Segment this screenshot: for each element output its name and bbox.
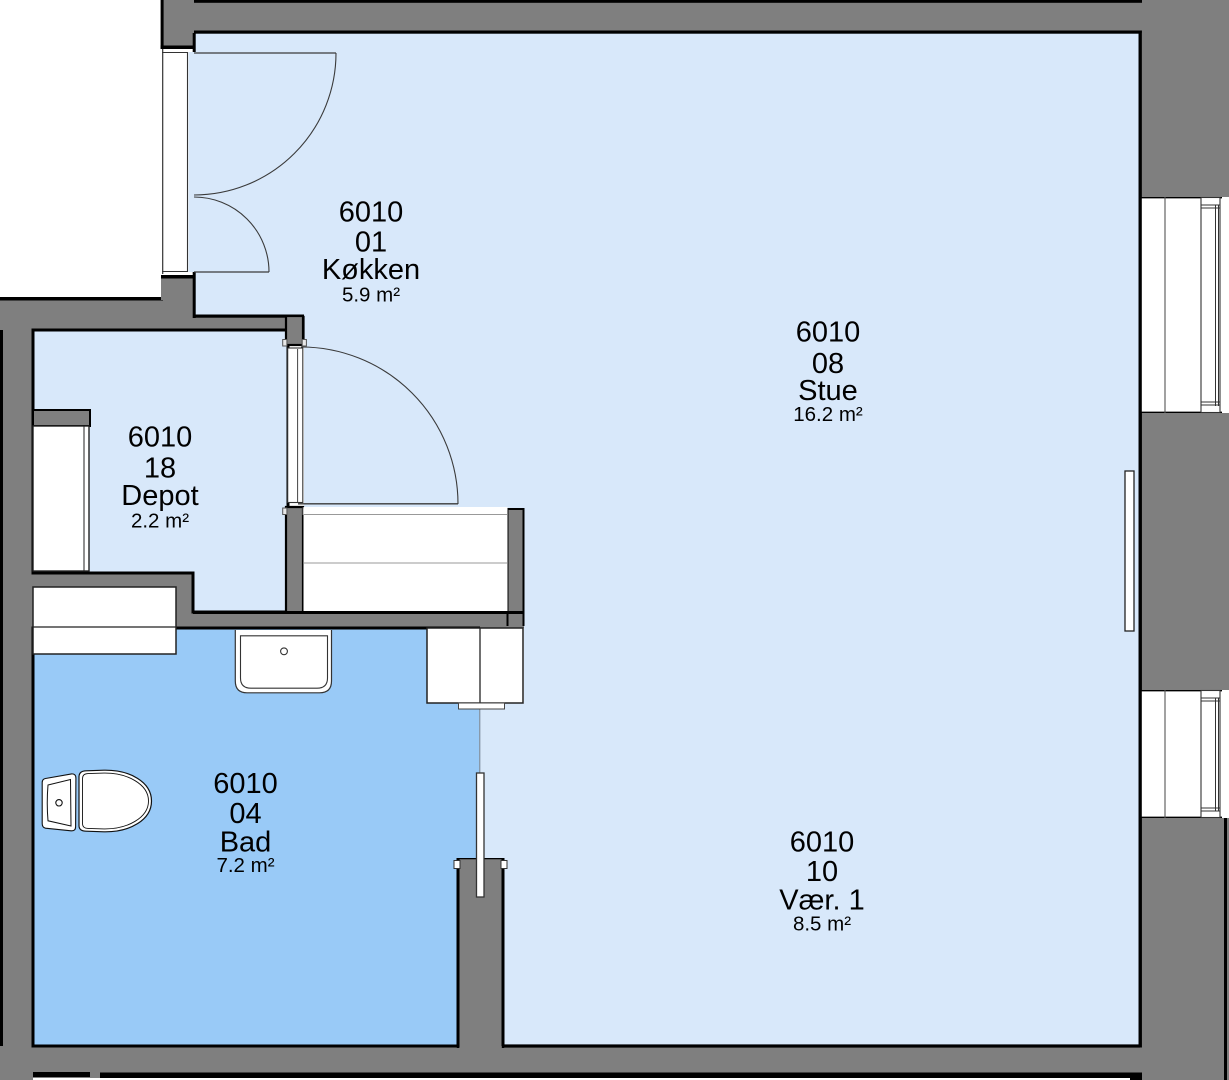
svg-text:Depot: Depot: [121, 480, 198, 512]
svg-text:8.5 m²: 8.5 m²: [793, 913, 851, 936]
svg-text:5.9 m²: 5.9 m²: [342, 284, 400, 307]
svg-text:6010: 6010: [790, 827, 855, 859]
svg-text:6010: 6010: [213, 768, 278, 800]
svg-text:7.2 m²: 7.2 m²: [216, 854, 274, 877]
svg-text:04: 04: [229, 798, 261, 830]
svg-text:10: 10: [806, 856, 838, 888]
svg-text:6010: 6010: [796, 317, 861, 349]
svg-text:Køkken: Køkken: [322, 254, 420, 286]
svg-text:6010: 6010: [128, 422, 193, 454]
svg-text:16.2 m²: 16.2 m²: [793, 403, 863, 426]
svg-text:6010: 6010: [339, 197, 404, 229]
svg-text:2.2 m²: 2.2 m²: [131, 510, 189, 533]
